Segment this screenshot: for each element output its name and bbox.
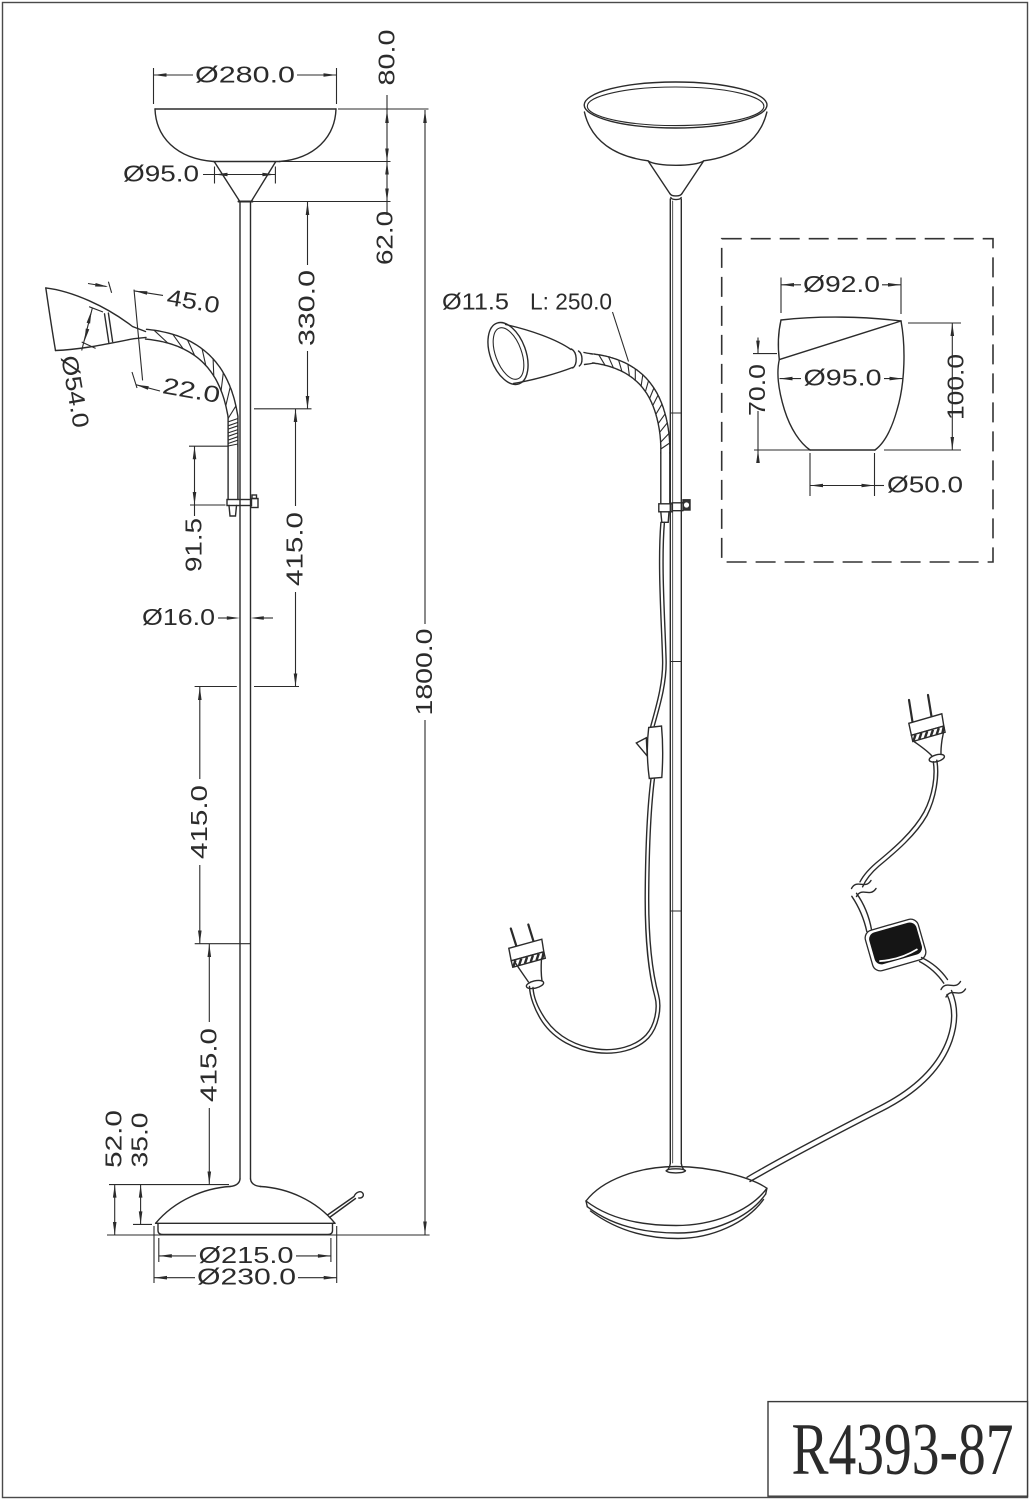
- svg-text:L: 250.0: L: 250.0: [530, 289, 612, 315]
- svg-text:Ø230.0: Ø230.0: [197, 1264, 296, 1290]
- svg-text:415.0: 415.0: [282, 512, 308, 586]
- svg-text:100.0: 100.0: [943, 354, 969, 420]
- svg-text:1800.0: 1800.0: [411, 629, 437, 716]
- svg-text:80.0: 80.0: [374, 30, 400, 86]
- svg-text:415.0: 415.0: [195, 1028, 221, 1102]
- svg-text:Ø50.0: Ø50.0: [887, 472, 963, 498]
- svg-text:Ø280.0: Ø280.0: [195, 62, 295, 88]
- svg-text:52.0: 52.0: [101, 1110, 127, 1168]
- svg-text:Ø16.0: Ø16.0: [142, 604, 215, 630]
- svg-text:91.5: 91.5: [181, 518, 207, 572]
- svg-text:62.0: 62.0: [372, 211, 398, 265]
- svg-text:Ø95.0: Ø95.0: [804, 365, 882, 391]
- svg-text:330.0: 330.0: [294, 270, 320, 346]
- svg-text:Ø92.0: Ø92.0: [803, 271, 880, 297]
- svg-text:70.0: 70.0: [744, 364, 770, 416]
- svg-text:R4393-87: R4393-87: [792, 1410, 1014, 1491]
- svg-text:Ø95.0: Ø95.0: [123, 161, 199, 187]
- svg-text:415.0: 415.0: [186, 785, 212, 859]
- svg-text:35.0: 35.0: [127, 1113, 153, 1168]
- svg-text:Ø11.5: Ø11.5: [442, 289, 509, 315]
